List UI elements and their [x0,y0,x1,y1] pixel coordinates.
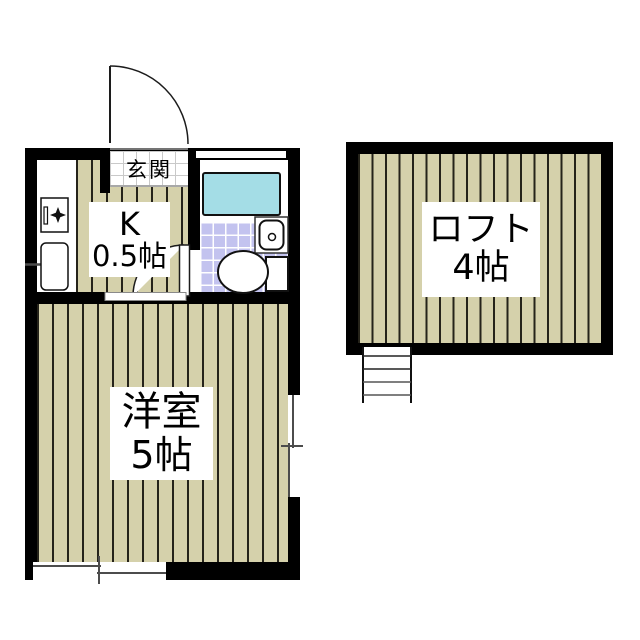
kitchen-label: K 0.5帖 [89,202,170,277]
entrance-door-icon [110,66,188,149]
bathroom-tile-floor [200,222,288,292]
kitchen-size: 0.5帖 [92,241,167,272]
kitchen-counter [37,160,76,292]
loft-size: 4帖 [452,250,509,288]
floor-plan: 玄関 K 0.5帖 洋室 5帖 ロフト 4帖 [0,0,640,640]
kitchen-name: K [119,207,140,242]
western-room-label: 洋室 5帖 [110,387,213,480]
ladder-icon [362,347,412,403]
loft-name: ロフト [428,212,533,250]
western-room-name: 洋室 [122,391,202,434]
western-room-size: 5帖 [130,435,192,476]
bathroom-window-icon [196,151,286,158]
bathroom-doorway [188,250,200,292]
bathtub-icon [202,172,281,216]
genkan-wall-stub [100,148,110,193]
entrance-label: 玄関 [110,153,188,185]
loft-label: ロフト 4帖 [422,202,540,297]
